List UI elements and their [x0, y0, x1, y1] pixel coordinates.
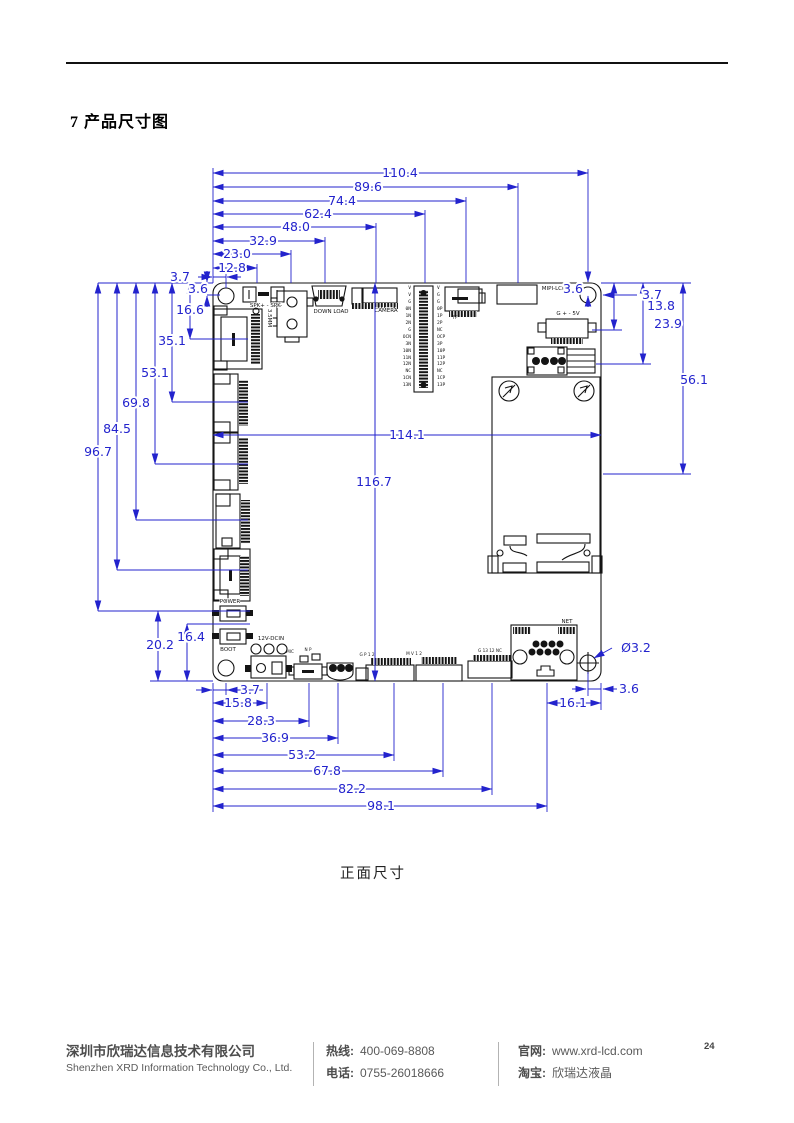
np-label: N P: [305, 647, 312, 652]
audio-jack: [271, 291, 313, 342]
dim-label: 96.7: [84, 444, 112, 459]
buzzer-component: [327, 663, 353, 680]
dim-label: 89.6: [354, 179, 382, 194]
dc-in-connector: [245, 644, 292, 678]
website-url: www.xrd-lcd.com: [552, 1044, 643, 1058]
dc-in-label: 12V-DCIN: [258, 636, 284, 642]
footer-divider: [313, 1042, 314, 1086]
taobao-shop: 欣瑞达液晶: [552, 1066, 612, 1080]
dim-label: 3.6: [563, 281, 583, 296]
dim-label: 56.1: [680, 372, 708, 387]
dim-label: 3.6: [188, 281, 208, 296]
dim-label: 53.2: [288, 747, 316, 762]
boot-label: BOOT: [220, 647, 236, 653]
footer-divider: [498, 1042, 499, 1086]
dim-label: 20.2: [146, 637, 174, 652]
fpc-b-label: M V 1 2: [406, 651, 422, 656]
hotline-number: 400-069-8808: [360, 1044, 435, 1058]
mipi-lcd-connector: [458, 285, 537, 304]
mounting-hole-bottom-left: [218, 660, 234, 676]
dim-label: 15.8: [224, 695, 252, 710]
dim-label: 48.0: [282, 219, 310, 234]
power-switch: [212, 606, 253, 621]
net-jack: [511, 625, 577, 680]
hotline-label: 热线:: [326, 1044, 354, 1058]
power-5v-label: G + - 5V: [556, 311, 580, 317]
dimension-annotations: 110.4 89.6 74.4 62.4 48.0 32.9 23.0 12.8…: [84, 165, 708, 813]
left-fpc-1: [214, 306, 262, 370]
dim-label: 32.9: [249, 233, 277, 248]
dim-label: 16.6: [176, 302, 204, 317]
dim-label: 36.9: [261, 730, 289, 745]
company-name-en: Shenzhen XRD Information Technology Co.,…: [66, 1062, 292, 1074]
dim-label: 98.1: [367, 798, 395, 813]
micro-usb-download: [312, 286, 346, 306]
company-name-cn: 深圳市欣瑞达信息技术有限公司: [66, 1040, 255, 1060]
dim-label: 82.2: [338, 781, 366, 796]
dim-label: 3.6: [619, 681, 639, 696]
fpc-c-label: G 13 12 NC: [478, 648, 502, 653]
dim-label-height: 116.7: [356, 474, 392, 489]
hole-diameter-label: Ø3.2: [621, 640, 651, 655]
pin-header-labels-left: V V G 0N 1N 2N G OCN 3N 10N 11N 12N NC 1…: [393, 286, 411, 390]
taobao-label: 淘宝:: [518, 1066, 546, 1080]
mic-component: [289, 654, 327, 679]
power-label: POWER: [220, 599, 241, 605]
phone-number: 0755-26018666: [360, 1066, 444, 1080]
dim-label: 69.8: [122, 395, 150, 410]
download-label: DOWN LOAD: [314, 309, 349, 315]
dim-label: 110.4: [382, 165, 418, 180]
audio-jack-label: 3.5MM: [266, 309, 272, 327]
mic-label: MIC: [286, 649, 294, 654]
dim-label: 28.3: [247, 713, 275, 728]
dim-label: 23.0: [223, 246, 251, 261]
left-connector-3: [214, 433, 248, 490]
speaker-pads: [243, 287, 284, 302]
document-page: 7 产品尺寸图: [0, 0, 794, 1123]
bottom-fpc-b: [416, 657, 462, 681]
power-5v-connector: [538, 319, 596, 344]
left-connector-2: [214, 374, 248, 432]
pin-header-labels-right: V G G 0P 1P 2P NC OCP 3P 10P 11P 12P NC …: [437, 286, 455, 390]
website-label: 官网:: [518, 1044, 546, 1058]
small-component: [352, 288, 362, 304]
dim-label: 12.8: [218, 260, 246, 275]
page-number: 24: [704, 1041, 715, 1052]
mounting-hole-top-left: [218, 288, 234, 304]
net-label: NET: [562, 619, 574, 625]
dim-label: 16.1: [559, 695, 587, 710]
fpc-a-label: G P 1 2: [359, 652, 374, 657]
dim-label: 16.4: [177, 629, 205, 644]
dim-label: 23.9: [654, 316, 682, 331]
bottom-fpc-a: [366, 658, 414, 681]
figure-caption: 正面尺寸: [340, 862, 406, 883]
dimension-drawing: SPK+ - SPK- 3.5MM DOWN LOAD CAMERA MIPI-…: [0, 0, 794, 1123]
dim-label: 13.8: [647, 298, 675, 313]
core-module: [488, 377, 602, 573]
dim-label: 84.5: [103, 421, 131, 436]
phone-label: 电话:: [326, 1066, 354, 1080]
dim-label: 35.1: [158, 333, 186, 348]
dim-label: 67.8: [313, 763, 341, 778]
left-connector-4: [216, 494, 250, 548]
mounting-hole-bottom-right: [577, 652, 599, 674]
four-pin-component: [527, 347, 595, 375]
pin-header: [414, 286, 433, 392]
bottom-fpc-c: [468, 655, 512, 678]
left-connector-5: [214, 549, 250, 601]
dim-label: 53.1: [141, 365, 169, 380]
dim-label-width: 114.1: [389, 427, 425, 442]
dim-label: 3.7: [170, 269, 190, 284]
page-footer: 深圳市欣瑞达信息技术有限公司 Shenzhen XRD Information …: [0, 1036, 794, 1096]
dim-label: 74.4: [328, 193, 356, 208]
boot-switch: [212, 629, 253, 644]
